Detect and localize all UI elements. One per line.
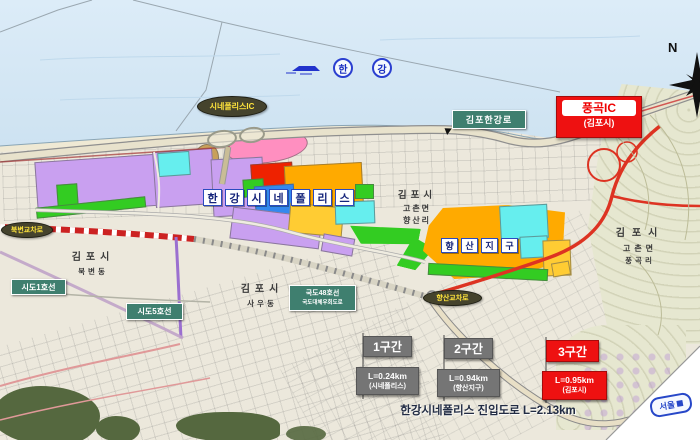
title-char: 구 — [501, 238, 518, 253]
title-char: 스 — [335, 189, 354, 206]
boat-icon — [292, 66, 320, 71]
region-label-bukbyeon: 김포시 북변동 — [57, 252, 129, 276]
region-label-hyangsan-ri: 김포시 고촌면 향산리 — [384, 190, 450, 226]
section3-length-box: L=0.95km (김포시) — [542, 371, 607, 400]
title-char: 강 — [225, 189, 244, 206]
punggok-ic-name: 풍곡IC — [562, 100, 636, 116]
sido1-sign: 시도1호선 — [11, 279, 66, 295]
compass-n-label: N — [668, 40, 677, 55]
seoul-label: 서울 — [658, 398, 675, 413]
cinepolis-ic-label: 시네폴리스IC — [197, 96, 267, 117]
title-char: 지 — [481, 238, 498, 253]
admin-boundary-line — [0, 0, 92, 32]
hyangsan-junction-label: 향산교차로 — [423, 290, 482, 306]
title-char: 향 — [441, 238, 458, 253]
admin-boundary-line — [222, 22, 560, 92]
river-name-char: 한 — [333, 58, 353, 78]
hyangsan-title: 향 산 지 구 — [441, 238, 518, 253]
purple-road — [176, 237, 181, 338]
gukdo48-sign: 국도48호선 국도대체우회도로 — [289, 285, 356, 311]
cinepolis-title: 한 강 시 네 폴 리 스 — [203, 189, 354, 206]
title-char: 한 — [203, 189, 222, 206]
access-road-total-label: 한강시네폴리스 진입도로 L=2.13km — [388, 402, 588, 418]
section1-label: 1구간 — [363, 336, 412, 357]
punggok-ic-sub: (김포시) — [557, 117, 641, 130]
section1-length-box: L=0.24km (시네폴리스) — [356, 367, 419, 395]
bukbyeon-junction-label: 북변교차로 — [1, 222, 53, 238]
title-char: 시 — [247, 189, 266, 206]
title-char: 리 — [313, 189, 332, 206]
sido5-sign: 시도5호선 — [126, 303, 183, 320]
site-plan-map: 한 강 N 시네폴리스IC 김포한강로 풍곡IC (김포시) 한 강 시 네 폴… — [0, 0, 700, 440]
section2-label: 2구간 — [444, 338, 493, 359]
gimpo-hangang-ro-sign: 김포한강로 — [452, 110, 526, 129]
title-char: 네 — [269, 189, 288, 206]
ic-ramp — [239, 126, 265, 143]
section3-label: 3구간 — [546, 340, 599, 362]
region-label-punggok-ri: 김포시 고촌면 풍곡리 — [606, 228, 674, 265]
title-char: 폴 — [291, 189, 310, 206]
region-label-sau: 김포시 사우동 — [228, 284, 296, 308]
access-road-red — [428, 126, 660, 296]
river-name-char: 강 — [372, 58, 392, 78]
section2-length-box: L=0.94km (향산지구) — [437, 369, 500, 397]
punggok-ic-box: 풍곡IC (김포시) — [556, 96, 642, 138]
title-char: 산 — [461, 238, 478, 253]
seoul-square-icon — [676, 400, 683, 407]
punggok-ic-loop — [588, 149, 620, 181]
